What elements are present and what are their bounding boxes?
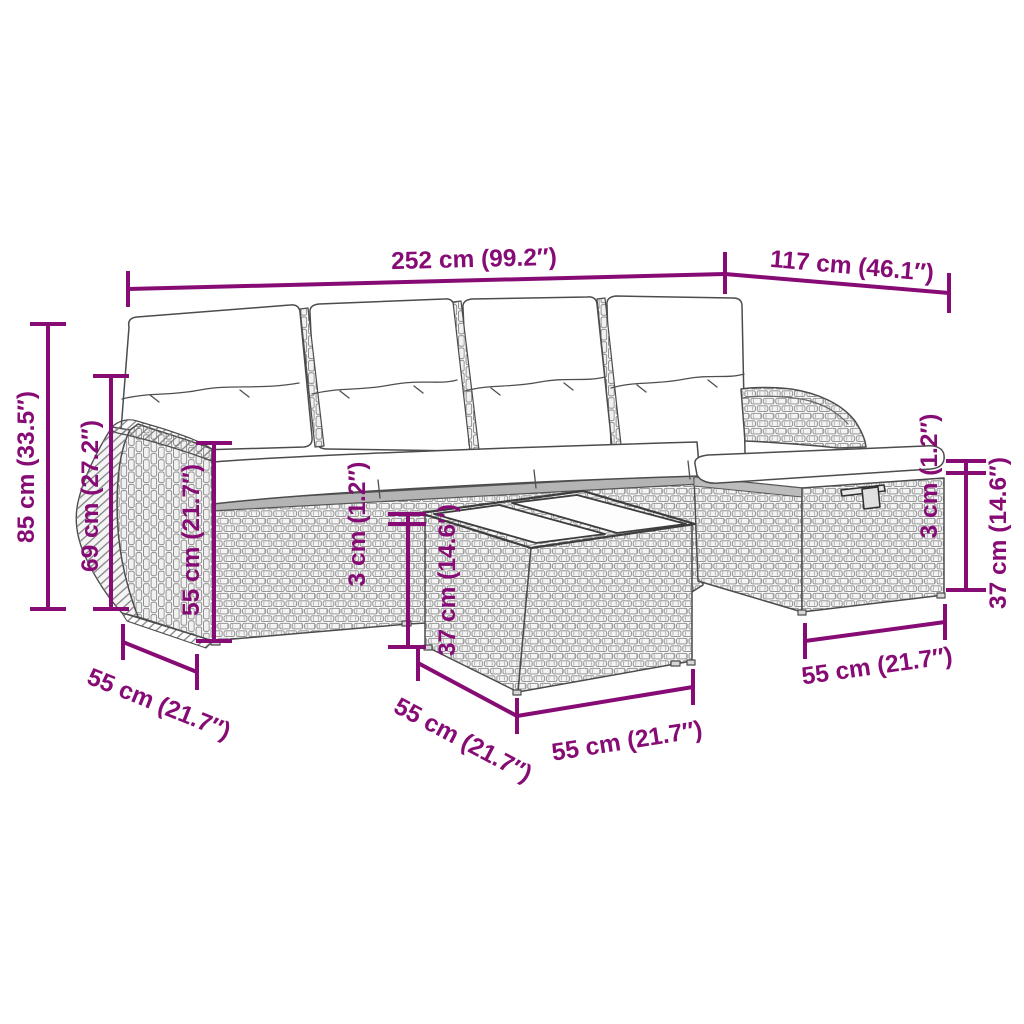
svg-text:85 cm (33.5″): 85 cm (33.5″) <box>13 391 40 543</box>
svg-text:252 cm (99.2″): 252 cm (99.2″) <box>391 244 557 275</box>
svg-text:37 cm (14.6″): 37 cm (14.6″) <box>985 457 1012 609</box>
svg-text:69 cm (27.2″): 69 cm (27.2″) <box>77 420 104 572</box>
svg-text:3 cm (1.2″): 3 cm (1.2″) <box>916 414 943 539</box>
svg-text:3 cm (1.2″): 3 cm (1.2″) <box>344 462 371 587</box>
svg-text:55 cm (21.7″): 55 cm (21.7″) <box>178 464 205 616</box>
svg-text:37 cm (14.6″): 37 cm (14.6″) <box>434 504 461 656</box>
